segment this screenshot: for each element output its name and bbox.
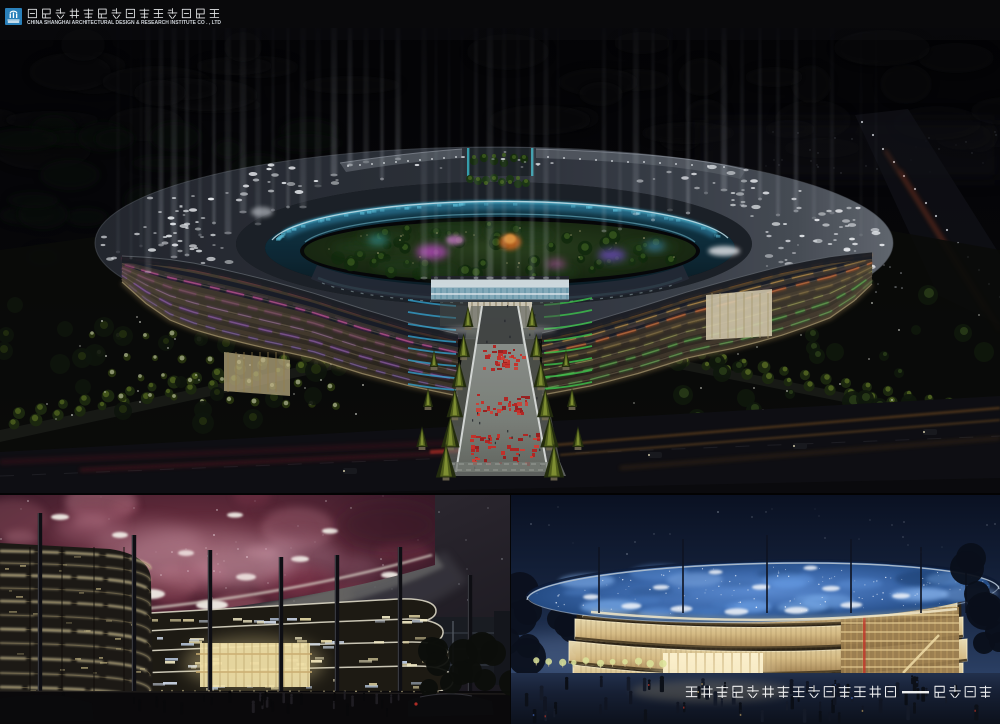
svg-text:CHINA SHANGHAI ARCHITECTURAL D: CHINA SHANGHAI ARCHITECTURAL DESIGN & RE… (27, 20, 221, 26)
